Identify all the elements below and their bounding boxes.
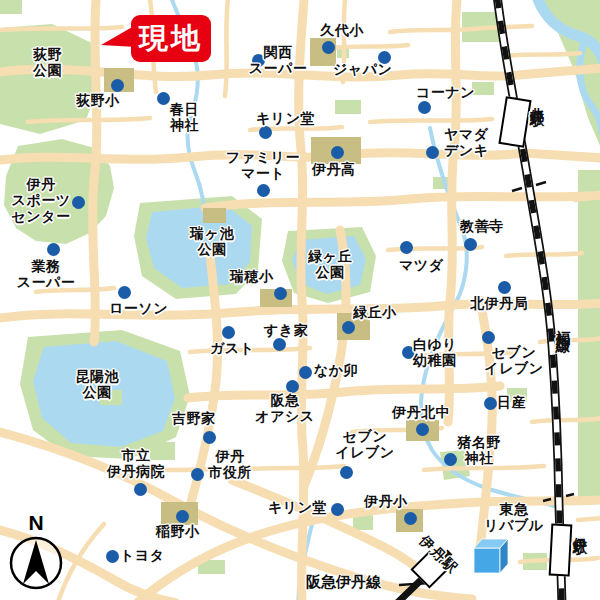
lawson-label: ローソン bbox=[109, 300, 168, 316]
itami-hospital-label: 市立 伊丹病院 bbox=[107, 447, 165, 479]
kita-itami-station-label: 北伊丹駅 bbox=[529, 96, 545, 104]
midorioka-es-dot bbox=[342, 321, 355, 334]
fukuchiyama-line-label: 福知山線 bbox=[553, 318, 572, 330]
inano-es-label: 稲野小 bbox=[156, 523, 200, 539]
seven-eleven-ne-label: セブン イレブン bbox=[484, 344, 543, 376]
kansai-super-label: 関西 スーパー bbox=[249, 44, 308, 76]
kita-itami-post-label: 北伊丹局 bbox=[470, 295, 528, 311]
midorigaoka-park-label: 緑ヶ丘 公園 bbox=[308, 248, 352, 280]
toyota-dot bbox=[106, 550, 119, 563]
itami-city-hall-label: 伊丹 市役所 bbox=[208, 448, 252, 480]
kirindo-north-dot bbox=[259, 126, 272, 139]
hankyu-oasis-label: 阪急 オアシス bbox=[255, 392, 314, 424]
kushiro-es-dot bbox=[322, 41, 335, 54]
kohnan-dot bbox=[418, 101, 431, 114]
itami-city-hall-dot bbox=[191, 468, 204, 481]
hankyu-oasis-dot bbox=[286, 380, 299, 393]
kirindo-south-label: キリン堂 bbox=[268, 499, 327, 515]
nissan-label: 日産 bbox=[497, 394, 526, 410]
mazda-dot bbox=[400, 241, 413, 254]
itami-es-label: 伊丹小 bbox=[364, 493, 408, 509]
koyaike-park-label: 昆陽池 公園 bbox=[75, 368, 119, 400]
japan-store-label: ジャパン bbox=[333, 61, 392, 77]
itami-sports-center-label: 伊丹 スポーツ センター bbox=[12, 176, 71, 225]
itami-hospital-dot bbox=[134, 483, 147, 496]
nakau-dot bbox=[299, 366, 312, 379]
itami-es-dot bbox=[404, 512, 417, 525]
itami-kita-jhs-label: 伊丹北中 bbox=[392, 404, 450, 420]
site-callout: 現地 bbox=[131, 15, 211, 62]
seven-eleven-s-dot bbox=[340, 466, 353, 479]
yamada-denki-dot bbox=[426, 146, 439, 159]
family-mart-dot bbox=[257, 184, 270, 197]
inano-shrine-label: 猪名野 神社 bbox=[457, 434, 501, 466]
ogino-park-label: 荻野 公園 bbox=[33, 46, 62, 78]
gyomu-super-dot bbox=[47, 243, 60, 256]
itami-station-jr-rect bbox=[549, 523, 573, 576]
gusto-label: ガスト bbox=[210, 340, 254, 356]
yamada-denki-label: ヤマダ デンキ bbox=[444, 126, 488, 158]
kirindo-north-label: キリン堂 bbox=[256, 110, 315, 126]
nakau-label: なか卯 bbox=[314, 362, 358, 378]
hankyu-itami-line-label: 阪急伊丹線 bbox=[306, 573, 381, 592]
inano-es-dot bbox=[176, 510, 189, 523]
itami-hs-label: 伊丹高 bbox=[312, 161, 356, 177]
mizuho-es-dot bbox=[274, 287, 287, 300]
ogino-es-dot bbox=[111, 79, 124, 92]
seven-eleven-ne-dot bbox=[482, 331, 495, 344]
kasuga-shrine-label: 春日 神社 bbox=[170, 101, 199, 133]
nissan-dot bbox=[484, 397, 497, 410]
map-canvas: 現地 N 福知山線 阪急伊丹線 荻野小春日 神社関西 スーパー久代小ジャパンキリ… bbox=[0, 0, 600, 600]
toyota-label: トヨタ bbox=[120, 547, 164, 563]
inano-shrine-dot bbox=[444, 453, 457, 466]
itami-hs-dot bbox=[331, 146, 344, 159]
kasuga-shrine-dot bbox=[157, 92, 170, 105]
gyomu-super-label: 業務 スーパー bbox=[17, 258, 76, 290]
zugaike-park-label: 瑞ヶ池 公園 bbox=[190, 225, 234, 257]
kohnan-label: コーナン bbox=[416, 84, 475, 100]
yoshinoya-dot bbox=[203, 431, 216, 444]
sukiya-label: すき家 bbox=[264, 322, 308, 338]
kushiro-es-label: 久代小 bbox=[320, 22, 364, 38]
compass-north-label: N bbox=[28, 511, 43, 535]
midorioka-es-label: 緑丘小 bbox=[353, 304, 397, 320]
kirindo-south-dot bbox=[331, 503, 344, 516]
kyozenji-label: 教善寺 bbox=[460, 218, 504, 234]
itami-sports-center-dot bbox=[72, 196, 85, 209]
seven-eleven-s-label: セブン イレブン bbox=[335, 428, 394, 460]
mazda-label: マツダ bbox=[399, 257, 443, 273]
sukiya-dot bbox=[273, 338, 286, 351]
shirayuri-kg-label: 白ゆり 幼稚園 bbox=[413, 336, 457, 368]
itami-kita-jhs-dot bbox=[416, 423, 429, 436]
kyozenji-dot bbox=[464, 238, 477, 251]
mizuho-es-label: 瑞穂小 bbox=[230, 268, 274, 284]
compass-icon bbox=[11, 538, 61, 588]
kita-itami-post-dot bbox=[498, 281, 511, 294]
office-cube-icon bbox=[474, 539, 508, 573]
itami-station-jr-label: 伊丹駅 bbox=[572, 526, 588, 532]
yoshinoya-label: 吉野家 bbox=[172, 410, 216, 426]
tokyu-livable-label: 東急 リバブル bbox=[484, 501, 543, 533]
gusto-dot bbox=[222, 326, 235, 339]
lawson-dot bbox=[118, 286, 131, 299]
ogino-es-label: 荻野小 bbox=[76, 92, 120, 108]
family-mart-label: ファミリー マート bbox=[226, 149, 300, 181]
